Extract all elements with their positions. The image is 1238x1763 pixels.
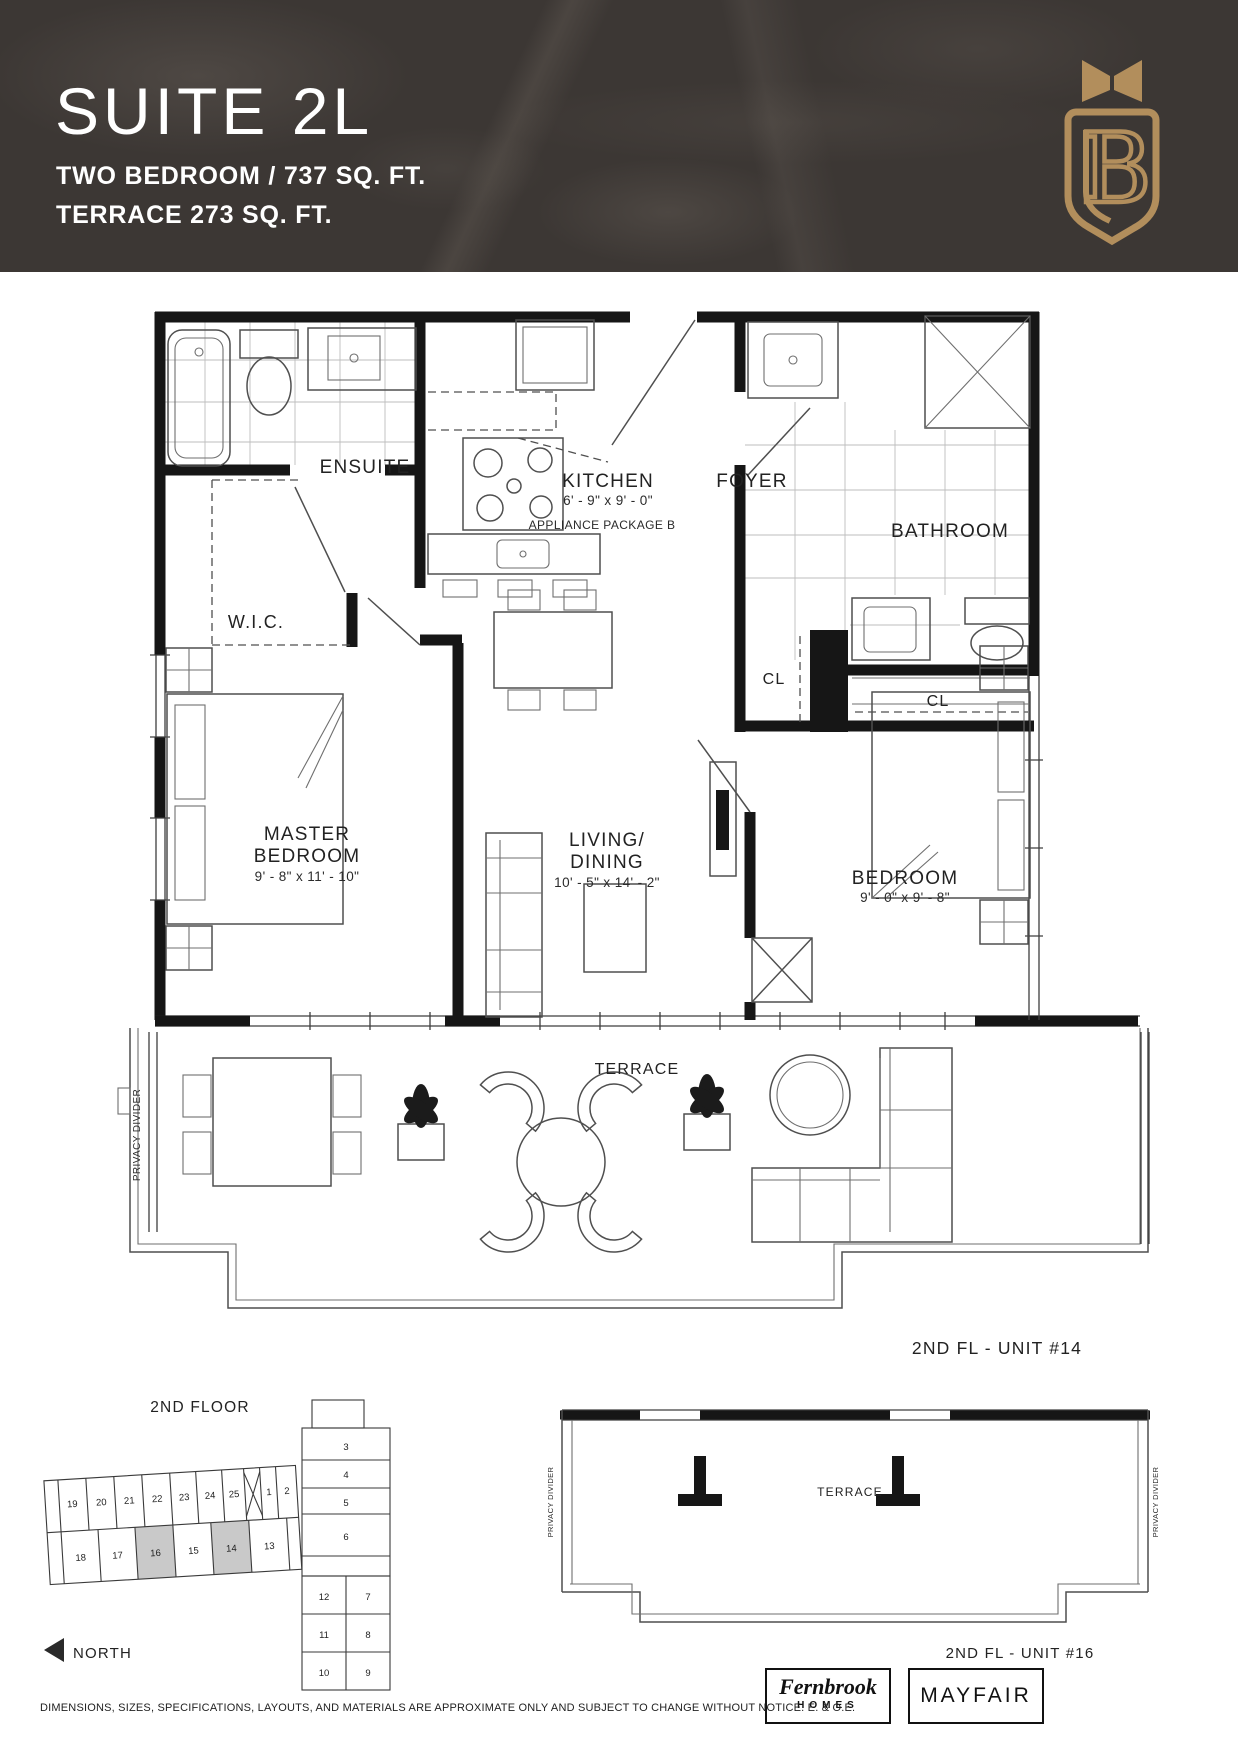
living-dining-label-2: DINING [570, 852, 644, 873]
ensuite-label: ENSUITE [320, 457, 411, 478]
keyplan-unit: 21 [124, 1495, 135, 1507]
plant-icon [398, 1084, 444, 1160]
wic-label: W.I.C. [228, 612, 284, 632]
keyplan-unit: 15 [188, 1545, 199, 1557]
keyplan: 2ND FLOOR 19 20 21 22 23 24 25 1 2 18 17 [44, 1399, 390, 1690]
closet1-label: CL [763, 671, 786, 688]
keyplan-unit: 4 [343, 1470, 348, 1481]
keyplan-unit: 1 [266, 1487, 272, 1498]
keyplan-wing: 3 4 5 6 12 7 11 8 10 9 [302, 1400, 390, 1690]
keyplan-unit: 23 [179, 1492, 190, 1504]
bedroom-dimensions: 9' - 0" x 9' - 8" [860, 890, 950, 905]
keyplan-unit: 9 [365, 1668, 370, 1679]
keyplan-unit: 17 [112, 1550, 123, 1562]
keyplan-unit: 24 [205, 1490, 216, 1502]
keyplan-main-bar: 19 20 21 22 23 24 25 1 2 18 17 16 15 14 … [44, 1465, 302, 1584]
room-labels: ENSUITE W.I.C. KITCHEN 6' - 9" x 9' - 0"… [132, 457, 1082, 1358]
keyplan-unit: 18 [75, 1552, 86, 1564]
mayfair-logo-text: MAYFAIR [910, 1670, 1042, 1722]
keyplan-unit: 19 [67, 1499, 78, 1511]
keyplan-unit: 2 [284, 1486, 290, 1497]
fernbrook-logo-text: Fernbrook [767, 1676, 889, 1698]
brochure-page: SUITE 2L TWO BEDROOM / 737 SQ. FT. TERRA… [0, 0, 1238, 1763]
keyplan-unit: 5 [343, 1498, 348, 1509]
keyplan-unit: 8 [365, 1630, 370, 1641]
privacy-divider-label: PRIVACY DIVIDER [132, 1089, 143, 1181]
master-bedroom-furniture [166, 648, 343, 970]
keyplan-unit: 22 [152, 1494, 163, 1506]
foyer-label: FOYER [716, 471, 787, 492]
master-bedroom-dimensions: 9' - 8" x 11' - 10" [255, 869, 360, 884]
privacy-divider-right-label: PRIVACY DIVIDER [1151, 1466, 1160, 1537]
keyplan-unit-highlighted: 14 [226, 1543, 237, 1555]
living-dining-label-1: LIVING/ [569, 830, 645, 851]
keyplan-title: 2ND FLOOR [150, 1399, 250, 1416]
keyplan-unit: 6 [343, 1532, 348, 1543]
floorplan-drawing: ENSUITE W.I.C. KITCHEN 6' - 9" x 9' - 0"… [0, 0, 1238, 1763]
kitchen-fixtures [428, 320, 600, 597]
keyplan-unit: 3 [343, 1442, 348, 1453]
plant-icon [684, 1074, 730, 1150]
keyplan-unit: 20 [96, 1497, 107, 1509]
master-bedroom-label-2: BEDROOM [254, 846, 361, 867]
terrace-divider-posts [678, 1456, 920, 1506]
closet2-label: CL [927, 693, 950, 710]
keyplan-unit: 10 [319, 1668, 330, 1679]
keyplan-unit: 12 [319, 1592, 330, 1603]
north-arrow-icon [44, 1638, 64, 1662]
suite-interior-walls [160, 312, 1034, 1020]
living-dining-dimensions: 10' - 5" x 14' - 2" [554, 875, 660, 890]
appliance-note: APPLIANCE PACKAGE B [529, 518, 676, 532]
living-dining-furniture [486, 590, 736, 1017]
mayfair-logo: MAYFAIR [908, 1668, 1044, 1724]
north-indicator: NORTH [44, 1638, 132, 1662]
bedroom-label: BEDROOM [852, 868, 959, 889]
north-label: NORTH [73, 1645, 132, 1662]
kitchen-label: KITCHEN [562, 471, 654, 492]
bathroom-label: BATHROOM [891, 521, 1009, 542]
keyplan-unit: 11 [319, 1630, 329, 1641]
terrace-furniture [183, 1048, 952, 1267]
bathroom-fixtures [748, 316, 1030, 660]
master-bedroom-label-1: MASTER [264, 824, 350, 845]
unit16-terrace-label: TERRACE [817, 1485, 883, 1499]
privacy-divider-left-label: PRIVACY DIVIDER [546, 1466, 555, 1537]
unit-16-label: 2ND FL - UNIT #16 [946, 1645, 1095, 1662]
keyplan-unit: 7 [365, 1592, 370, 1603]
unit-14-label: 2ND FL - UNIT #14 [912, 1338, 1082, 1358]
unit16-terrace-plan: TERRACE PRIVACY DIVIDER PRIVACY DIVIDER … [546, 1410, 1160, 1662]
fernbrook-homes-logo: Fernbrook HOMES [765, 1668, 891, 1724]
keyplan-unit: 25 [229, 1489, 240, 1501]
terrace-label: TERRACE [595, 1061, 680, 1078]
disclaimer-text: DIMENSIONS, SIZES, SPECIFICATIONS, LAYOU… [40, 1702, 855, 1714]
kitchen-dimensions: 6' - 9" x 9' - 0" [563, 493, 653, 508]
keyplan-unit: 13 [264, 1541, 275, 1553]
keyplan-unit-highlighted: 16 [150, 1548, 161, 1560]
